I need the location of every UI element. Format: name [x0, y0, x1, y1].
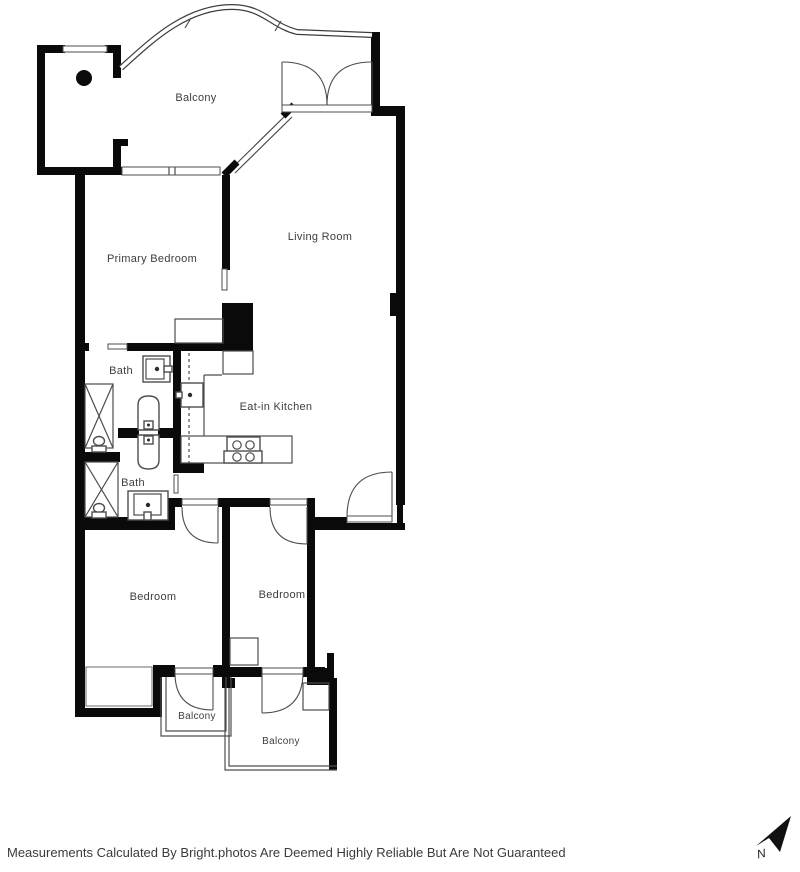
room-label-primary-bedroom: Primary Bedroom: [107, 253, 197, 265]
railing: [161, 677, 231, 736]
disclaimer-text: Measurements Calculated By Bright.photos…: [7, 845, 566, 860]
wall-segment: [37, 45, 45, 175]
wall-segment: [222, 175, 230, 270]
toilet-symbol: [92, 437, 106, 453]
window-symbol: [231, 113, 288, 169]
closet-symbol: [175, 319, 223, 343]
wall-segment: [329, 678, 337, 770]
room-label-eat-in-kitchen: Eat-in Kitchen: [240, 401, 313, 413]
entry-door-threshold: [347, 516, 392, 522]
room-label-balcony-top: Balcony: [175, 92, 216, 104]
room-label-bedroom-right: Bedroom: [259, 589, 306, 601]
curved-railing-inner: [121, 7, 372, 68]
wall-segment: [347, 523, 405, 530]
wall-segment: [75, 452, 120, 462]
utility-block: [222, 303, 253, 351]
wall-segment: [37, 45, 65, 53]
north-arrow-icon: N: [756, 816, 791, 861]
door-threshold: [270, 499, 307, 505]
window-symbol: [122, 167, 220, 175]
doors: [108, 62, 392, 713]
balcony-railings: [121, 7, 372, 770]
room-label-balcony-left: Balcony: [178, 711, 216, 722]
door-swing-symbol: [182, 507, 218, 543]
door-threshold: [182, 499, 218, 505]
room-label-bath-1: Bath: [109, 365, 133, 377]
toilet-symbol: [92, 504, 106, 519]
door-threshold: [175, 668, 213, 674]
wall-segment: [390, 293, 397, 316]
window-symbol: [63, 46, 107, 52]
north-label: N: [756, 846, 768, 862]
wall-segment: [175, 498, 182, 507]
balcony-unit-symbol: [303, 683, 329, 710]
railing: [225, 688, 337, 770]
door-swing-symbol: [262, 672, 303, 713]
wall-segment: [118, 428, 139, 438]
bathtub-symbol: [138, 396, 159, 430]
wall-segment: [153, 665, 175, 677]
kitchen-cabinet-symbol: [223, 351, 253, 374]
door-jamb: [174, 475, 178, 493]
wall-segment: [222, 667, 262, 677]
door-swing-symbol: [175, 673, 213, 710]
door-swing-symbol: [347, 472, 392, 517]
wall-segment: [173, 463, 204, 473]
room-label-living-room: Living Room: [288, 231, 352, 243]
railing: [166, 677, 226, 731]
wall-segment: [173, 347, 181, 465]
wall-segment: [396, 110, 405, 505]
wall-segment: [397, 503, 403, 525]
window-symbol: [235, 117, 292, 173]
wall-segment: [222, 678, 235, 688]
room-label-balcony-right: Balcony: [262, 736, 300, 747]
wall-segment: [113, 139, 128, 146]
wall-segment: [75, 708, 162, 717]
floor-plan-canvas: Balcony Primary Bedroom Living Room Bath…: [0, 0, 800, 872]
door-swing-symbol: [282, 62, 327, 105]
door-threshold: [262, 668, 303, 674]
room-label-bedroom-left: Bedroom: [130, 591, 177, 603]
wall-segment: [85, 343, 89, 351]
wall-segment: [218, 498, 270, 507]
room-label-bath-2: Bath: [121, 477, 145, 489]
wall-segment: [158, 428, 175, 438]
bathtub-symbol: [138, 435, 159, 469]
wall-segment: [37, 167, 125, 175]
wall-segment: [315, 517, 347, 530]
wall-segment: [127, 343, 173, 351]
sliding-door-panel: [108, 344, 127, 349]
sink-vanity-symbol: [143, 356, 172, 382]
french-door-sill: [282, 105, 372, 112]
door-swing-symbol: [327, 62, 372, 105]
wall-segment: [75, 175, 85, 717]
door-swing-symbol: [270, 507, 307, 544]
stove-symbol: [224, 437, 262, 463]
alcove-outline: [86, 667, 152, 706]
sink-vanity-symbol: [128, 491, 168, 520]
wall-segment: [307, 498, 315, 678]
railing: [229, 688, 337, 766]
windows: [63, 46, 294, 175]
wall-segment: [113, 45, 121, 78]
balcony-table-symbol: [76, 70, 92, 86]
door-jamb: [222, 269, 227, 290]
closet-symbol: [230, 638, 258, 665]
wall-segment: [222, 507, 230, 688]
